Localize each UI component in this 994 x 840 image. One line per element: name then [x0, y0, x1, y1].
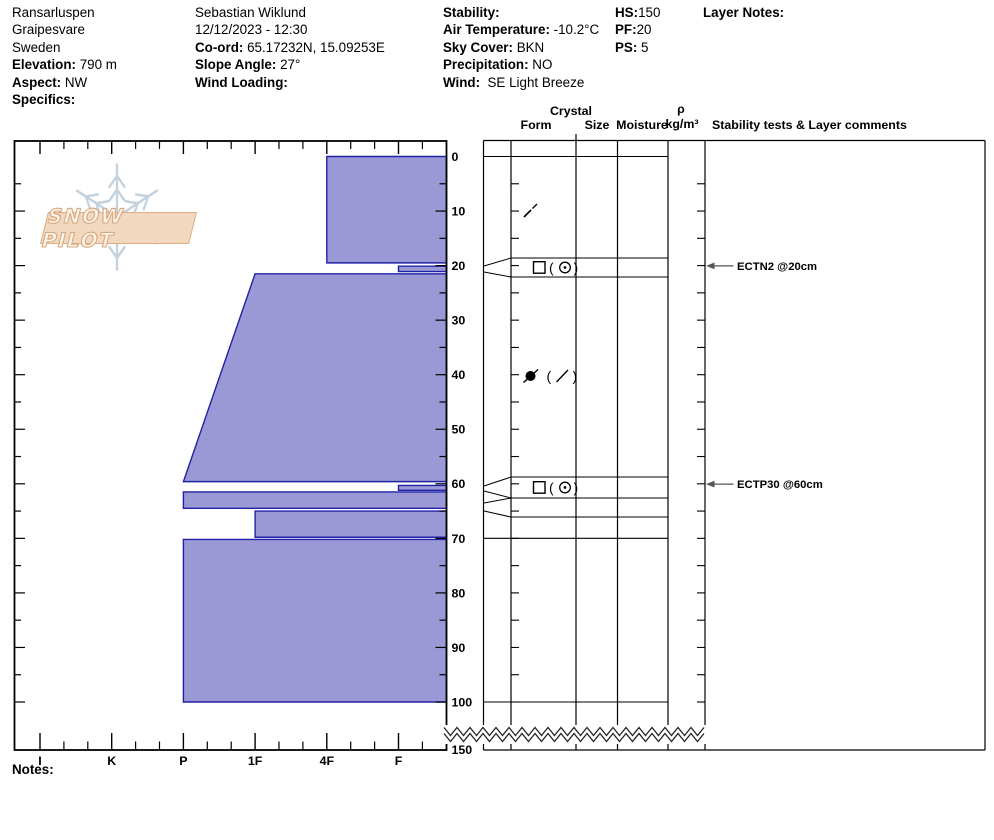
ps-row: PS: 5 — [615, 39, 660, 56]
svg-text:(: ( — [547, 368, 552, 384]
svg-text:(: ( — [549, 260, 554, 276]
snow-layer-bar — [183, 274, 446, 482]
depth-tick-label: 70 — [452, 532, 466, 546]
header-conditions: Stability: Air Temperature: -10.2°C Sky … — [443, 4, 599, 91]
wind-row: Wind: SE Light Breeze — [443, 74, 599, 91]
grain-form-symbols: ()()() — [524, 204, 579, 496]
snow-layer-bar — [255, 511, 446, 537]
svg-text:): ) — [573, 368, 578, 384]
depth-tick-label: 30 — [452, 314, 466, 328]
header-layer-notes: Layer Notes: — [703, 4, 784, 21]
stability-test-label: ECTN2 @20cm — [737, 261, 817, 273]
depth-tick-label: 20 — [452, 259, 466, 273]
header-observer: Sebastian Wiklund 12/12/2023 - 12:30 Co-… — [195, 4, 385, 91]
depth-tick-label: 150 — [452, 743, 473, 757]
snowpilot-profile-page: Ransarluspen Graipesvare Sweden Elevatio… — [0, 0, 994, 840]
depth-tick-label: 60 — [452, 477, 466, 491]
hardness-tick-label: P — [179, 754, 187, 768]
slope-angle-row: Slope Angle: 27° — [195, 56, 385, 73]
stability-test-label: ECTP30 @60cm — [737, 479, 823, 491]
precipitation-row: Precipitation: NO — [443, 56, 599, 73]
hardness-tick-label: K — [107, 754, 116, 768]
snow-layer-bar — [183, 492, 446, 508]
col-header-crystal: Crystal — [541, 104, 601, 118]
pf-row: PF:20 — [615, 21, 660, 38]
layer-data-grid — [484, 134, 986, 750]
col-header-rho: ρ — [661, 102, 701, 116]
depth-tick-label: 90 — [452, 641, 466, 655]
depth-tick-label: 0 — [452, 150, 459, 164]
wind-loading-row: Wind Loading: — [195, 74, 385, 91]
notes-label: Notes: — [12, 762, 54, 777]
svg-text:(: ( — [549, 480, 554, 496]
hardness-tick-label: 4F — [320, 754, 335, 768]
snow-layer-bar — [399, 266, 447, 271]
col-header-rho-units: kg/m³ — [652, 117, 712, 131]
pit-name: Ransarluspen — [12, 4, 117, 21]
pit-country: Sweden — [12, 39, 117, 56]
snowpilot-logo-text: SNOW PILOT — [39, 204, 198, 252]
layer-notes-label: Layer Notes: — [703, 4, 784, 21]
specifics-row: Specifics: — [12, 91, 117, 108]
hardness-tick-label: 1F — [248, 754, 263, 768]
depth-tick-label: 50 — [452, 423, 466, 437]
hardness-layer-bars — [183, 157, 446, 703]
elevation-row: Elevation: 790 m — [12, 56, 117, 73]
snow-layer-bar — [327, 157, 447, 263]
depth-axis-break — [444, 725, 707, 744]
aspect-row: Aspect: NW — [12, 74, 117, 91]
depth-tick-label: 40 — [452, 368, 466, 382]
depth-tick-label: 100 — [452, 695, 473, 709]
hardness-tick-label: F — [395, 754, 403, 768]
snow-layer-bar — [399, 485, 447, 490]
sky-cover-row: Sky Cover: BKN — [443, 39, 599, 56]
stability-test-annotations: ECTN2 @20cmECTP30 @60cm — [706, 261, 823, 491]
hs-row: HS:150 — [615, 4, 660, 21]
observer-name: Sebastian Wiklund — [195, 4, 385, 21]
pit-area: Graipesvare — [12, 21, 117, 38]
svg-text:): ) — [574, 260, 579, 276]
depth-tick-label: 10 — [452, 204, 466, 218]
observation-datetime: 12/12/2023 - 12:30 — [195, 21, 385, 38]
snowpilot-logo: SNOW PILOT — [40, 212, 197, 244]
depth-tick-label: 80 — [452, 586, 466, 600]
coord-row: Co-ord: 65.17232N, 15.09253E — [195, 39, 385, 56]
header-location: Ransarluspen Graipesvare Sweden Elevatio… — [12, 4, 117, 108]
snow-layer-bar — [183, 539, 446, 702]
svg-text:): ) — [574, 480, 579, 496]
stability-row: Stability: — [443, 4, 599, 21]
header-snowpack: HS:150 PF:20 PS: 5 — [615, 4, 660, 56]
air-temp-row: Air Temperature: -10.2°C — [443, 21, 599, 38]
